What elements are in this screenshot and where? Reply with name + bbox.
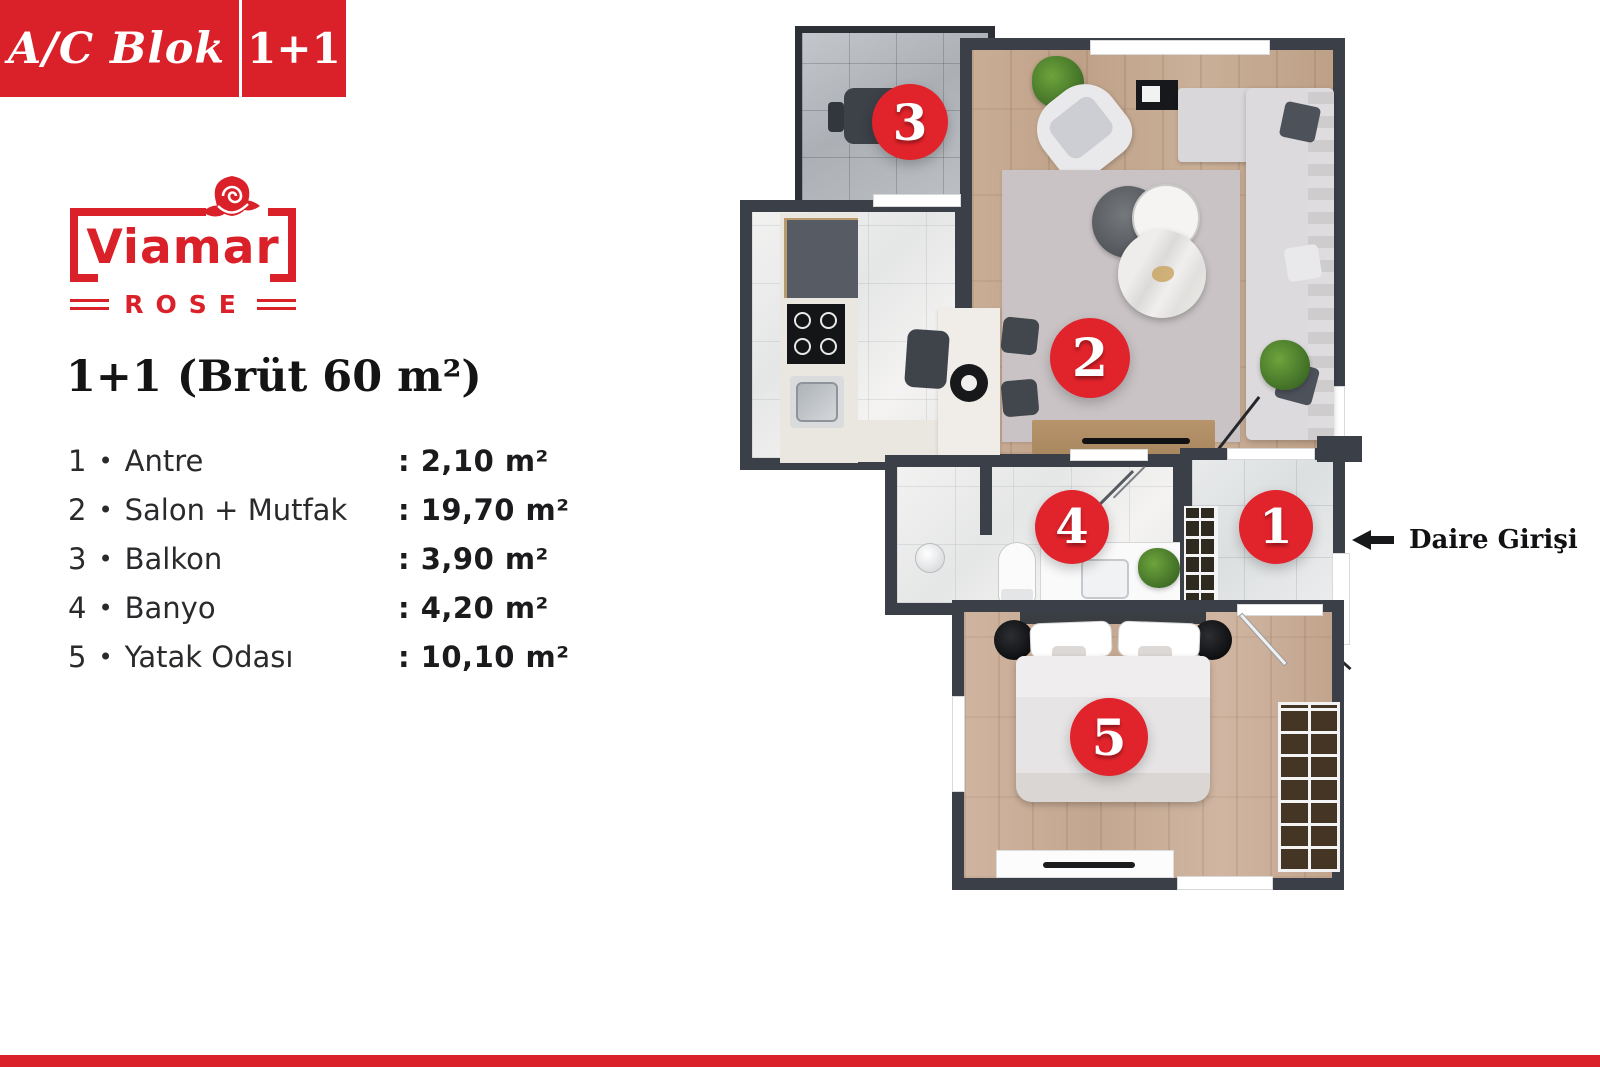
laundry-lamp	[915, 543, 945, 573]
wall-stub	[1317, 436, 1362, 462]
door-opening	[1070, 449, 1148, 461]
bedside-table	[994, 620, 1034, 660]
kitchen-sink	[790, 376, 844, 428]
room-marker-4: 4	[1035, 490, 1109, 564]
room-row-balkon: 3 • Balkon : 3,90 m²	[68, 534, 608, 583]
shoe-cabinet	[1184, 506, 1218, 610]
room-number: 2	[68, 493, 86, 527]
sofa-pillow	[1284, 244, 1323, 283]
room-marker-1: 1	[1239, 490, 1313, 564]
room-row-banyo: 4 • Banyo : 4,20 m²	[68, 583, 608, 632]
stove	[787, 304, 845, 364]
room-name: Yatak Odası	[125, 640, 294, 674]
bar-stool	[1000, 316, 1040, 356]
dresser	[996, 850, 1174, 878]
window	[952, 696, 965, 792]
room-area: : 2,10 m²	[398, 444, 608, 478]
room-name: Banyo	[125, 591, 216, 625]
bullet-separator: •	[98, 645, 112, 669]
page-title: 1+1 (Brüt 60 m²)	[66, 352, 482, 402]
entrance-direction: Daire Girişi	[1352, 521, 1592, 559]
bullet-separator: •	[98, 596, 112, 620]
bullet-separator: •	[98, 498, 112, 522]
door-opening	[873, 194, 961, 207]
room-number: 4	[68, 591, 86, 625]
plan-sheet: { "badge": { "block_label": "A/C Blok", …	[0, 0, 1600, 1067]
tv	[1082, 438, 1190, 444]
plant	[1138, 548, 1180, 588]
door-opening	[1237, 604, 1323, 616]
room-row-salon: 2 • Salon + Mutfak : 19,70 m²	[68, 485, 608, 534]
subbrand-line-left	[70, 299, 109, 310]
room-row-antre: 1 • Antre : 2,10 m²	[68, 436, 608, 485]
plant	[1260, 340, 1310, 390]
toilet	[998, 542, 1036, 604]
entrance-label: Daire Girişi	[1409, 525, 1578, 555]
room-row-yatak: 5 • Yatak Odası : 10,10 m²	[68, 632, 608, 681]
brand-subname-row: ROSE	[70, 290, 296, 319]
room-name: Antre	[125, 444, 204, 478]
brand-subname: ROSE	[118, 290, 248, 319]
bullet-separator: •	[98, 449, 112, 473]
logo-frame: Viamar	[70, 208, 296, 282]
room-number: 1	[68, 444, 86, 478]
block-label: A/C Blok	[0, 24, 239, 74]
coffee-machine	[950, 364, 988, 402]
left-arrow-icon	[1352, 529, 1394, 551]
room-list: 1 • Antre : 2,10 m² 2 • Salon + Mutfak :…	[68, 436, 608, 681]
coffee-table-marble	[1118, 230, 1206, 318]
room-area: : 3,90 m²	[398, 542, 608, 576]
side-table	[1136, 80, 1178, 110]
wardrobe	[1278, 702, 1340, 872]
bath-partition-wall	[980, 455, 992, 535]
room-marker-2: 2	[1050, 318, 1130, 398]
room-number: 5	[68, 640, 86, 674]
rose-icon	[196, 172, 266, 238]
sofa-pillow	[1279, 101, 1322, 144]
unit-label: 1+1	[242, 24, 346, 73]
room-marker-3: 3	[872, 84, 948, 160]
balcony-chair	[828, 102, 844, 132]
dining-chair	[904, 329, 950, 390]
window	[1090, 40, 1270, 55]
window	[1177, 876, 1273, 890]
room-number: 3	[68, 542, 86, 576]
room-area: : 10,10 m²	[398, 640, 608, 674]
bar-stool	[1000, 378, 1039, 417]
bottom-accent-bar	[0, 1055, 1600, 1067]
room-area: : 4,20 m²	[398, 591, 608, 625]
unit-badge: A/C Blok 1+1	[0, 0, 346, 97]
room-marker-5: 5	[1070, 698, 1148, 776]
room-area: : 19,70 m²	[398, 493, 608, 527]
bullet-separator: •	[98, 547, 112, 571]
fridge	[784, 218, 858, 298]
floor-plan: 3 2 4 1 5	[740, 8, 1362, 894]
room-name: Balkon	[125, 542, 223, 576]
brand-logo: Viamar ROSE	[64, 176, 310, 326]
room-name: Salon + Mutfak	[125, 493, 348, 527]
door-opening	[1227, 448, 1315, 460]
subbrand-line-right	[257, 299, 296, 310]
